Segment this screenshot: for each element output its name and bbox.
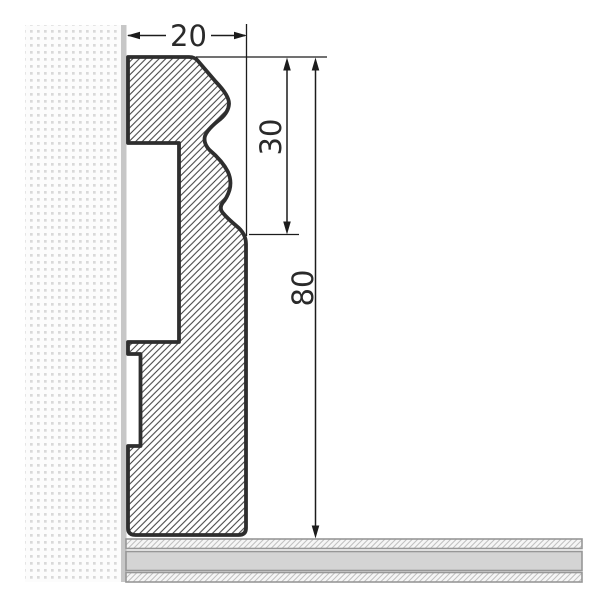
dim-upper-height-label: 30 <box>254 119 288 156</box>
dim-total-height-arrow-bottom <box>312 526 320 539</box>
floor-section <box>126 539 582 582</box>
dim-upper-height-30: 30 <box>249 58 299 235</box>
dim-upper-height-arrow-bottom <box>283 222 291 235</box>
dim-total-height-arrow-top <box>312 58 320 71</box>
wall-section <box>25 25 121 582</box>
dim-upper-height-arrow-top <box>283 58 291 71</box>
dim-width-label: 20 <box>170 19 207 53</box>
dim-width-arrow-right <box>234 32 247 39</box>
dim-width-arrow-left <box>127 32 140 39</box>
dim-total-height-80: 80 <box>286 58 320 539</box>
floor-bottom-layer <box>126 573 582 583</box>
technical-drawing-canvas: 20 30 80 <box>0 0 604 604</box>
drawing-stage: 20 30 80 <box>0 0 604 604</box>
wall-surface-line <box>121 25 127 582</box>
skirting-profile <box>128 57 246 535</box>
dim-total-height-label: 80 <box>286 270 320 307</box>
floor-core-layer <box>126 552 582 571</box>
floor-top-layer <box>126 539 582 549</box>
